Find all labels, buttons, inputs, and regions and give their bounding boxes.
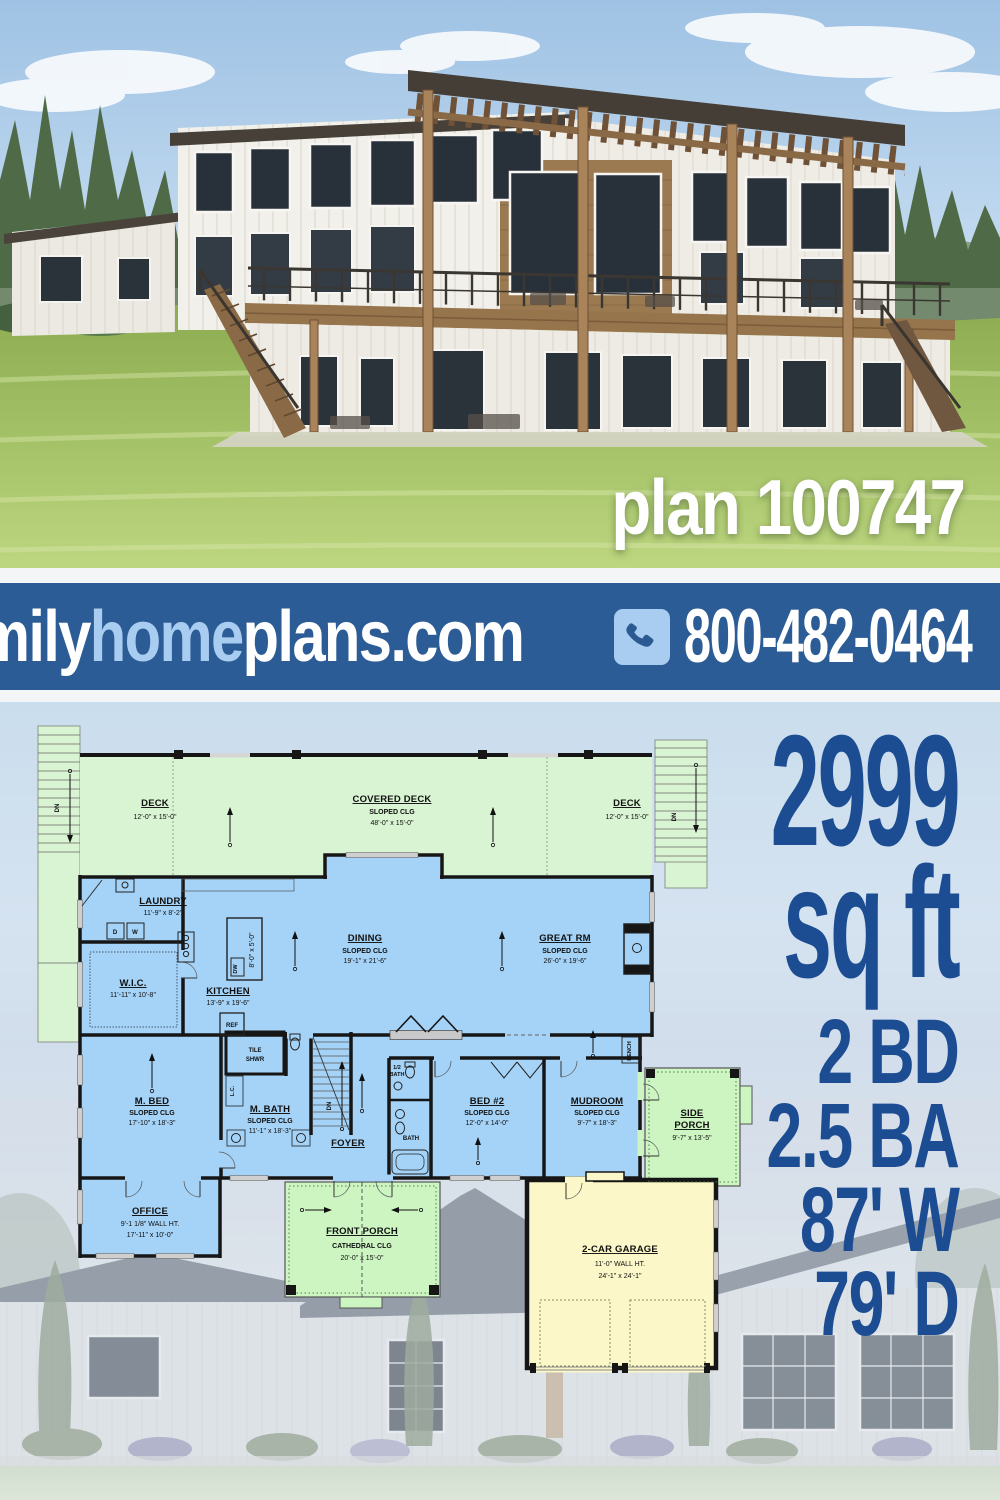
room-dims-dining: 19'-1" x 21'-6"	[343, 958, 387, 965]
phone-number: 800-482-0464	[684, 593, 972, 680]
room-dims-bed2: 12'-0" x 14'-0"	[465, 1120, 509, 1127]
brand-banner: familyhomeplans.com 800-482-0464	[0, 583, 1000, 690]
sqft-unit: sq ft	[770, 862, 958, 984]
stat-depth: 79' D	[723, 1262, 958, 1346]
room-label-lc: L.C.	[230, 1085, 236, 1096]
stats-panel: 2999 sq ft 2 BD 2.5 BA 87' W 79' D	[623, 730, 959, 1346]
room-dims-deck-left: 12'-0" x 15'-0"	[133, 814, 177, 821]
phone-contact: 800-482-0464	[614, 593, 1000, 680]
window	[118, 258, 150, 300]
room-label-mudroom: MUDROOM	[571, 1096, 624, 1107]
lower-windows	[300, 350, 902, 430]
wordmark-home: home	[90, 597, 243, 677]
room-clg-mudroom: SLOPED CLG	[574, 1110, 620, 1117]
room-label-half-bath-1: 1/2	[393, 1065, 401, 1071]
window	[40, 256, 82, 302]
room-clg-bed2: SLOPED CLG	[464, 1110, 510, 1117]
stat-width: 87' W	[723, 1178, 958, 1262]
left-deck-stairs	[38, 726, 80, 1042]
room-dims-covered-deck: 48'-0" x 15'-0"	[370, 820, 414, 827]
room-label-bed2: BED #2	[470, 1096, 504, 1107]
room-dims-mudroom: 9'-7" x 18'-3"	[577, 1120, 617, 1127]
hero-photo: plan 100747	[0, 0, 1000, 568]
room-label-tile-shwr-2: SHWR	[246, 1057, 265, 1063]
room-clg-great-rm: SLOPED CLG	[542, 948, 588, 955]
sqft-value: 2999	[770, 730, 958, 852]
phone-handset-icon	[614, 609, 670, 665]
room-label-dining: DINING	[348, 933, 382, 944]
island-dims: 8'-0" x 5'-0"	[249, 932, 256, 968]
promo-pin: plan 100747 familyhomeplans.com 800-482-…	[0, 0, 1000, 1500]
room-label-foyer: FOYER	[331, 1138, 365, 1149]
room-dims-kitchen: 13'-9" x 19'-6"	[206, 1000, 250, 1007]
room-label-front-porch: FRONT PORCH	[326, 1226, 398, 1237]
site-wordmark: familyhomeplans.com	[0, 596, 523, 678]
plan-section: DECK 12'-0" x 15'-0" COVERED DECK SLOPED…	[0, 702, 1000, 1500]
plan-number: plan 100747	[611, 462, 964, 553]
room-dims-laundry: 11'-9" x 8'-2"	[144, 910, 183, 917]
divider	[0, 568, 1000, 583]
room-dims-m-bath: 11'-1" x 18'-3"	[249, 1128, 292, 1135]
room-label-m-bed: M. BED	[135, 1096, 169, 1107]
room-label-bath: BATH	[403, 1136, 419, 1142]
room-label-laundry: LAUNDRY	[139, 896, 187, 907]
dw-label: DW	[233, 964, 239, 974]
room-label-m-bath: M. BATH	[250, 1104, 290, 1115]
room-label-covered-deck: COVERED DECK	[353, 794, 432, 805]
room-label-great-rm: GREAT RM	[539, 933, 591, 944]
room-label-kitchen: KITCHEN	[206, 986, 250, 997]
room-clg-m-bed: SLOPED CLG	[129, 1110, 175, 1117]
washer-label: W	[132, 930, 138, 936]
room-dims-office: 17'-11" x 10'-0"	[127, 1232, 174, 1239]
room-label-wic: W.I.C.	[119, 978, 146, 989]
wordmark-plans: plans.com	[243, 597, 524, 677]
divider	[0, 690, 1000, 702]
room-clg-dining: SLOPED CLG	[342, 948, 388, 955]
room-dims-wic: 11'-11" x 10'-8"	[110, 992, 156, 999]
dn-label-left: DN	[55, 804, 61, 813]
room-label-half-bath-2: BATH	[390, 1072, 405, 1078]
patio-slab	[212, 432, 988, 447]
room-dims-great-rm: 26'-0" x 19'-6"	[543, 958, 587, 965]
room-clg-m-bath: SLOPED CLG	[247, 1118, 293, 1125]
room-clg-covered-deck: SLOPED CLG	[369, 809, 415, 816]
ref-label: REF	[226, 1023, 238, 1029]
room-dims-m-bed: 17'-10" x 18'-3"	[129, 1120, 176, 1127]
room-clg-front-porch: CATHEDRAL CLG	[332, 1243, 392, 1250]
stat-beds: 2 BD	[723, 1010, 958, 1094]
room-label-tile-shwr-1: TILE	[249, 1048, 262, 1054]
dn-label-stairs: DN	[327, 1102, 333, 1111]
dryer-label: D	[113, 930, 118, 936]
room-label-office: OFFICE	[132, 1206, 168, 1217]
stat-baths: 2.5 BA	[723, 1094, 958, 1178]
room-wall-office: 9'-1 1/8" WALL HT.	[121, 1221, 180, 1228]
wordmark-family: family	[0, 597, 90, 677]
room-dims-front-porch: 20'-0" x 15'-0"	[340, 1255, 384, 1262]
room-label-deck-left: DECK	[141, 798, 169, 809]
